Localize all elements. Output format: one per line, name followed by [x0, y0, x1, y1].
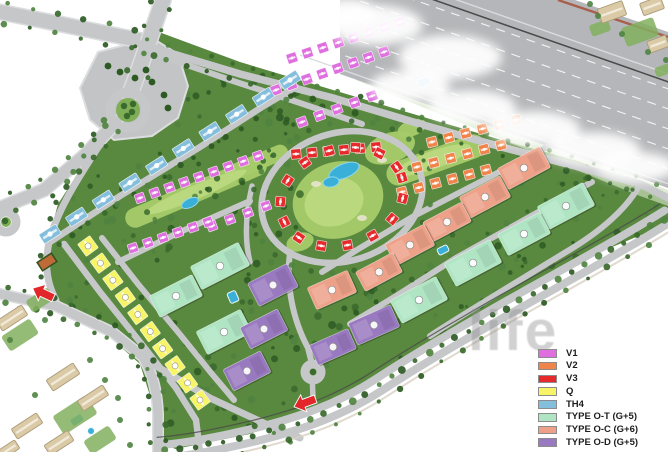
legend-item-th4: TH4	[538, 400, 638, 409]
legend-item-type-o-d-g-5-: TYPE O-D (G+5)	[538, 438, 638, 447]
legend-item-type-o-t-g-5-: TYPE O-T (G+5)	[538, 413, 638, 422]
legend-color-swatch	[538, 362, 557, 371]
legend-item-label: V3	[566, 374, 578, 384]
legend-item-q: Q	[538, 387, 638, 396]
legend-item-v3: V3	[538, 375, 638, 384]
map-legend: V1V2V3QTH4TYPE O-T (G+5)TYPE O-C (G+6)TY…	[538, 349, 638, 451]
legend-item-type-o-c-g-6-: TYPE O-C (G+6)	[538, 426, 638, 435]
legend-color-swatch	[538, 426, 557, 435]
legend-color-swatch	[538, 387, 557, 396]
legend-color-swatch	[538, 438, 557, 447]
legend-color-swatch	[538, 375, 557, 384]
legend-item-v1: V1	[538, 349, 638, 358]
legend-color-swatch	[538, 349, 557, 358]
legend-item-label: Q	[566, 387, 573, 397]
legend-item-label: TYPE O-D (G+5)	[566, 438, 638, 448]
legend-color-swatch	[538, 400, 557, 409]
legend-item-label: TYPE O-C (G+6)	[566, 425, 638, 435]
master-plan-screenshot: life V1V2V3QTH4TYPE O-T (G+5)TYPE O-C (G…	[0, 0, 668, 452]
legend-item-label: V1	[566, 349, 578, 359]
legend-color-swatch	[538, 413, 557, 422]
legend-item-label: TH4	[566, 400, 584, 410]
legend-item-v2: V2	[538, 362, 638, 371]
legend-item-label: V2	[566, 361, 578, 371]
legend-item-label: TYPE O-T (G+5)	[566, 412, 637, 422]
